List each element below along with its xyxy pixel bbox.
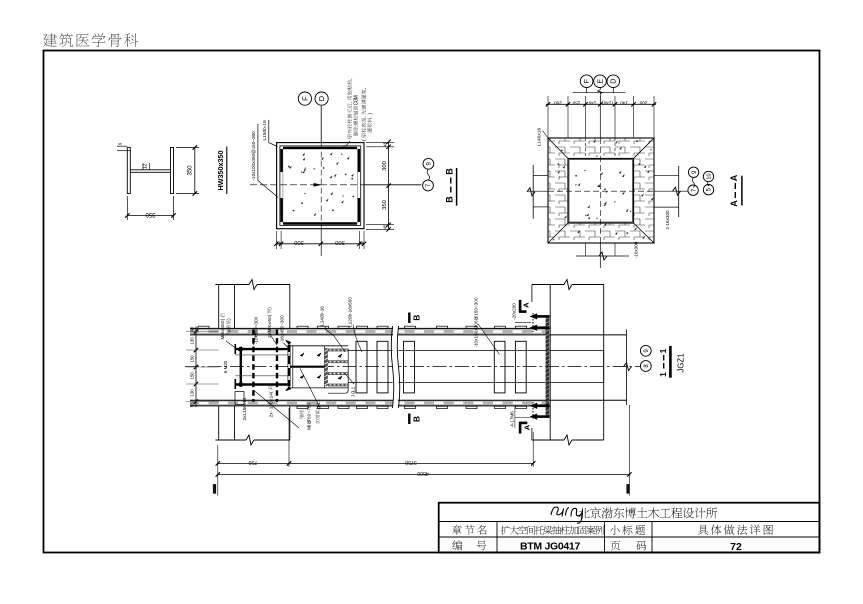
svg-text:45: 45 [383, 141, 388, 147]
svg-text:,: , [348, 78, 354, 79]
svg-text:2-16x300: 2-16x300 [665, 210, 670, 230]
svg-text:140: 140 [588, 100, 596, 105]
svg-text:10: 10 [707, 173, 713, 179]
svg-text:,: , [348, 102, 354, 103]
svg-text:L140b-16: L140b-16 [320, 306, 325, 326]
svg-text:150: 150 [189, 372, 194, 380]
svg-text:L150b-16: L150b-16 [262, 120, 268, 141]
svg-text:130: 130 [189, 389, 194, 397]
svg-text:4500: 4500 [417, 470, 429, 476]
svg-text:2xL150x14: 2xL150x14 [242, 397, 247, 420]
svg-text:HW350x350: HW350x350 [216, 151, 225, 191]
svg-text:3750: 3750 [405, 459, 417, 465]
svg-text:150: 150 [189, 355, 194, 363]
svg-text:(140): (140) [602, 100, 613, 105]
svg-text:750: 750 [249, 459, 258, 465]
svg-text:1: 1 [315, 399, 320, 402]
svg-text:A: A [523, 424, 532, 430]
svg-text:.: . [354, 95, 360, 96]
svg-text:200: 200 [639, 100, 647, 105]
svg-text:45: 45 [276, 241, 282, 246]
svg-text:140: 140 [620, 100, 628, 105]
svg-text:6-M20: 6-M20 [223, 360, 228, 373]
svg-text:-20x200: -20x200 [511, 303, 516, 320]
svg-text:350: 350 [382, 200, 388, 210]
svg-text:E: E [595, 79, 604, 84]
svg-text:45: 45 [383, 224, 388, 230]
svg-text:-16x450~300: -16x450~300 [280, 315, 285, 343]
svg-text:300: 300 [335, 239, 345, 245]
svg-text:-10x300: -10x300 [634, 241, 639, 258]
svg-text:.: . [368, 116, 374, 117]
svg-text:1: 1 [658, 372, 668, 377]
svg-text:12: 12 [143, 164, 149, 170]
svg-text:B: B [412, 315, 422, 321]
svg-text:300: 300 [382, 161, 388, 171]
svg-text:A: A [729, 174, 739, 181]
svg-text:40: 40 [189, 326, 194, 331]
svg-text:4-17M6: 4-17M6 [509, 411, 514, 427]
svg-text:BTM JG0417: BTM JG0417 [520, 541, 580, 553]
svg-text:A: A [729, 200, 739, 207]
svg-text:F: F [300, 96, 309, 101]
svg-text:300: 300 [294, 239, 304, 245]
svg-text:D: D [317, 95, 326, 101]
svg-text:150: 150 [572, 100, 580, 105]
svg-text:B: B [412, 416, 422, 422]
svg-text:200: 200 [554, 100, 562, 105]
svg-text:F: F [582, 78, 591, 83]
svg-text:130: 130 [189, 337, 194, 345]
svg-text:-10x150x300@150~300: -10x150x300@150~300 [474, 297, 479, 348]
svg-text:0: 0 [306, 403, 311, 406]
svg-text:L120b-16x500: L120b-16x500 [348, 297, 353, 327]
svg-text:): ) [368, 113, 374, 115]
svg-text:350: 350 [187, 165, 193, 176]
svg-text:45: 45 [359, 241, 365, 246]
svg-text:A: A [522, 302, 531, 308]
svg-text:-10x100x450@150~300: -10x100x450@150~300 [251, 131, 256, 181]
svg-text:D: D [609, 79, 618, 84]
svg-text:,: , [362, 88, 368, 89]
svg-text:B: B [445, 168, 455, 175]
svg-text:350: 350 [145, 211, 156, 217]
svg-text:L140x16: L140x16 [537, 127, 543, 146]
svg-text:1: 1 [658, 348, 668, 353]
svg-text:72: 72 [730, 541, 742, 553]
svg-text:JGZ1: JGZ1 [677, 353, 686, 372]
svg-text:55: 55 [189, 402, 194, 407]
svg-text:B: B [445, 196, 455, 203]
svg-text:(: ( [362, 139, 368, 141]
